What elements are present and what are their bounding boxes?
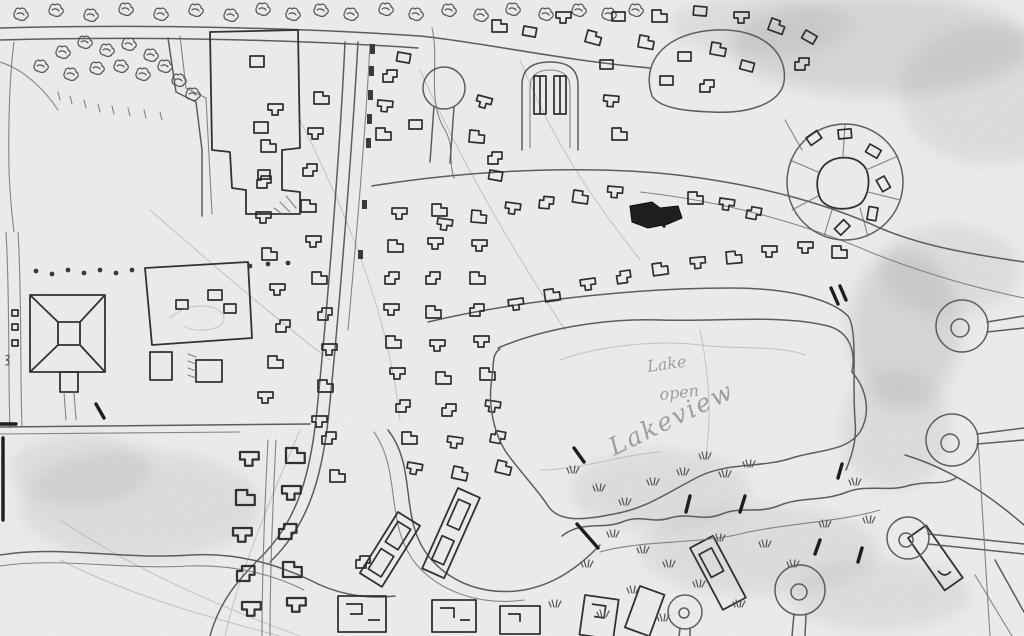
sketch-map-page: Lake open Lakeview: [0, 0, 1024, 636]
paper-grain-texture: [0, 0, 1024, 636]
hand-drawn-map: Lake open Lakeview: [0, 0, 1024, 636]
